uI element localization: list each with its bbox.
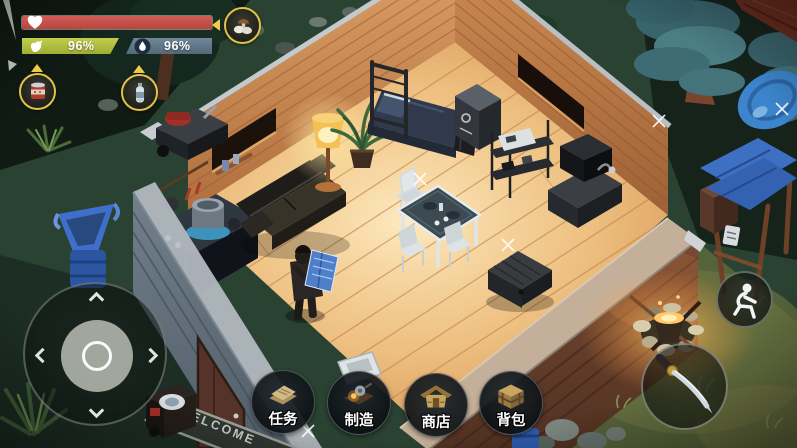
hunger-bar: 96%: [22, 38, 119, 54]
water-bottle-icon: [128, 81, 152, 105]
chevron-up-icon: [89, 292, 105, 308]
quick-slot-canned-food[interactable]: [19, 73, 56, 110]
slot-indicator-arrow: [133, 65, 145, 73]
heart-icon: [26, 13, 44, 30]
movement-joystick[interactable]: [23, 282, 167, 426]
katana-icon: [645, 347, 725, 427]
joystick-knob[interactable]: [61, 320, 133, 392]
chevron-right-icon: [143, 348, 159, 364]
crouch-icon: [725, 280, 765, 320]
craft-button[interactable]: 制造: [327, 371, 391, 435]
thirst-bar: 96%: [126, 38, 212, 54]
backpack-button[interactable]: 背包: [479, 371, 543, 435]
game-screen: WELCOME: [0, 0, 797, 448]
chevron-down-icon: [89, 403, 105, 419]
workbench-icon: [340, 379, 378, 411]
slot-indicator-arrow: [212, 19, 220, 31]
crate-icon: [492, 379, 530, 411]
backpack-button-label: 背包: [480, 409, 542, 430]
canned-food-icon: [26, 80, 50, 104]
food-icon: [231, 14, 255, 38]
shop-house-icon: [417, 381, 455, 413]
joystick-ring: [82, 341, 112, 371]
quick-slot-water-bottle[interactable]: [121, 74, 158, 111]
craft-button-label: 制造: [328, 409, 390, 430]
health-bar: [22, 16, 212, 29]
shop-button-label: 商店: [405, 411, 467, 432]
map-papers-icon: [264, 378, 302, 410]
chevron-left-icon: [35, 348, 51, 364]
water-drop-icon: [134, 38, 151, 55]
slot-indicator-arrow: [31, 64, 43, 72]
shop-button[interactable]: 商店: [404, 373, 468, 437]
stomach-icon: [28, 39, 43, 54]
quick-slot-food[interactable]: [224, 7, 261, 44]
hunger-value: 96%: [68, 39, 95, 53]
quests-button[interactable]: 任务: [251, 370, 315, 434]
quests-button-label: 任务: [252, 408, 314, 429]
crouch-button[interactable]: [716, 271, 773, 328]
attack-button[interactable]: [641, 343, 728, 430]
thirst-value: 96%: [164, 39, 191, 53]
